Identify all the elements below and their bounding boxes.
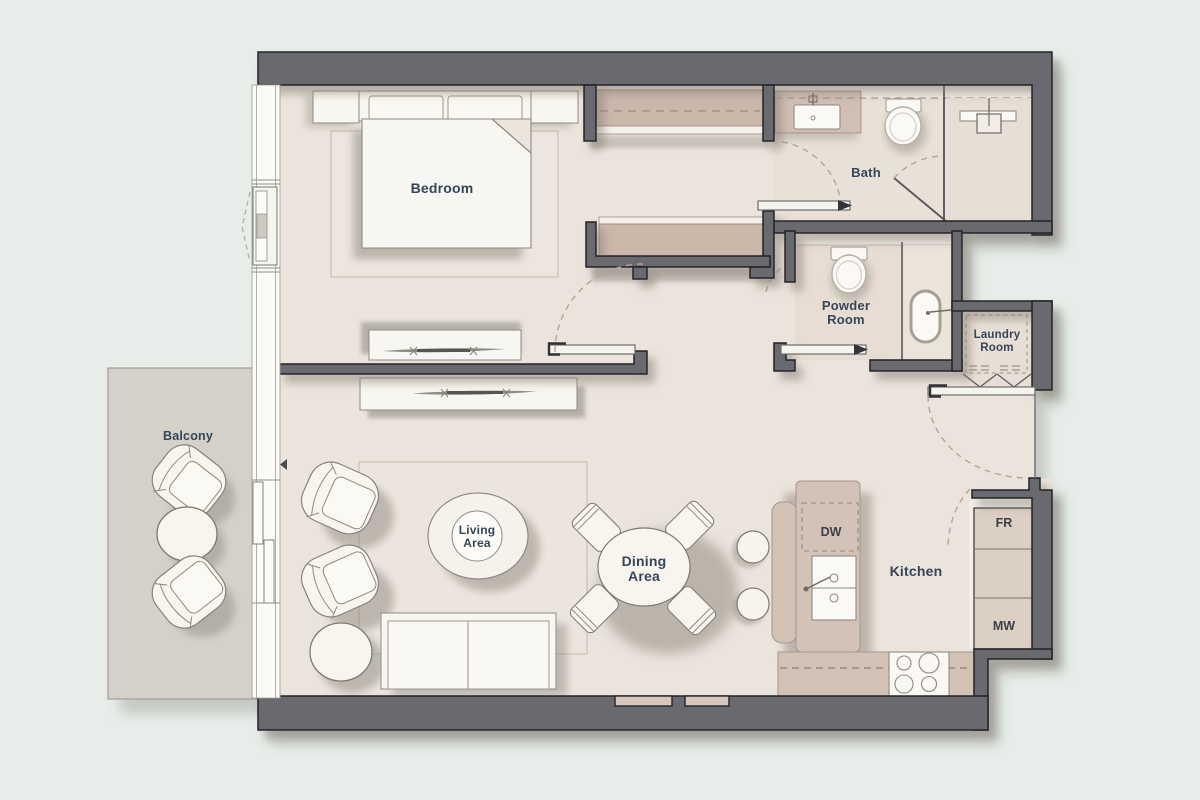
svg-text:DW: DW <box>821 525 842 539</box>
svg-text:Living: Living <box>459 523 496 537</box>
svg-text:FR: FR <box>996 516 1013 530</box>
svg-text:Dining: Dining <box>622 553 667 569</box>
svg-text:Bedroom: Bedroom <box>411 180 474 196</box>
svg-text:Bath: Bath <box>851 165 881 180</box>
svg-text:Area: Area <box>463 536 491 550</box>
svg-text:Room: Room <box>827 312 865 327</box>
svg-text:MW: MW <box>993 619 1015 633</box>
svg-text:Powder: Powder <box>822 298 870 313</box>
svg-text:Area: Area <box>628 568 660 584</box>
svg-text:Kitchen: Kitchen <box>890 563 943 579</box>
svg-text:Room: Room <box>980 342 1013 354</box>
svg-text:Balcony: Balcony <box>163 429 213 443</box>
svg-text:Laundry: Laundry <box>974 329 1021 341</box>
